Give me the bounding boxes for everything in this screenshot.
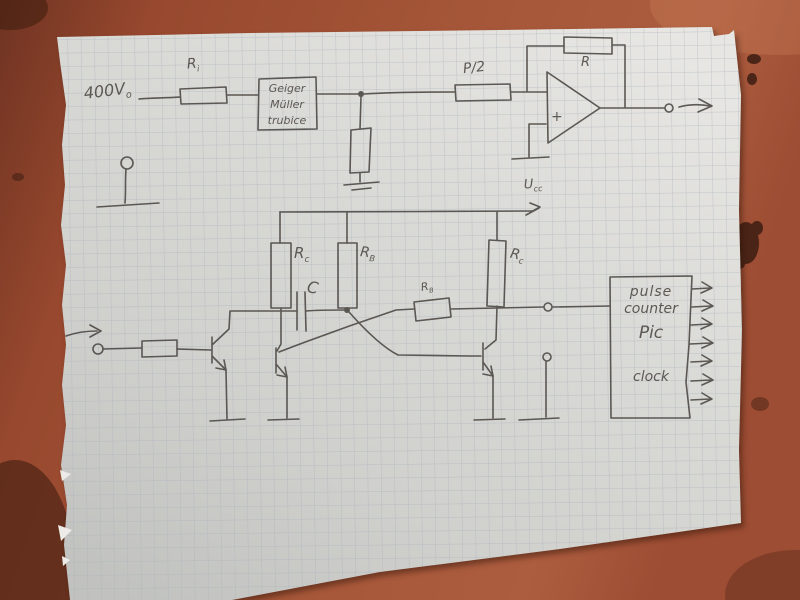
geiger-tube-box-label: Geiger Müller trubice [258, 81, 316, 129]
opamp-plus-label: + [551, 110, 563, 124]
rb-vertical-label: RB [359, 245, 376, 263]
wire [103, 348, 142, 349]
ground-icon [268, 419, 299, 420]
counter-box-label-pulse: pulse [610, 285, 692, 299]
counter-box-label-clock: clock [610, 370, 692, 384]
feedback-r-label: R [581, 56, 590, 69]
wire [177, 349, 211, 350]
rc-left-label: Rc [294, 246, 309, 265]
counter-box-label-pic: Pic [610, 325, 692, 342]
junction-dot [358, 91, 364, 97]
photo-of-hand-drawn-schematic: 400Vo Ri Geiger Müller trubice P/2 R + U… [0, 0, 800, 600]
ucc-label: Ucc [523, 177, 542, 194]
wire [280, 211, 533, 212]
p2-label: P/2 [462, 60, 485, 76]
r1-label: Ri [186, 57, 199, 74]
rb-horizontal-label: RB [420, 280, 434, 296]
ground-icon [474, 419, 505, 420]
counter-box-label-counter: counter [610, 302, 692, 316]
wire [553, 306, 610, 307]
wire [125, 169, 126, 203]
wire [360, 97, 361, 129]
